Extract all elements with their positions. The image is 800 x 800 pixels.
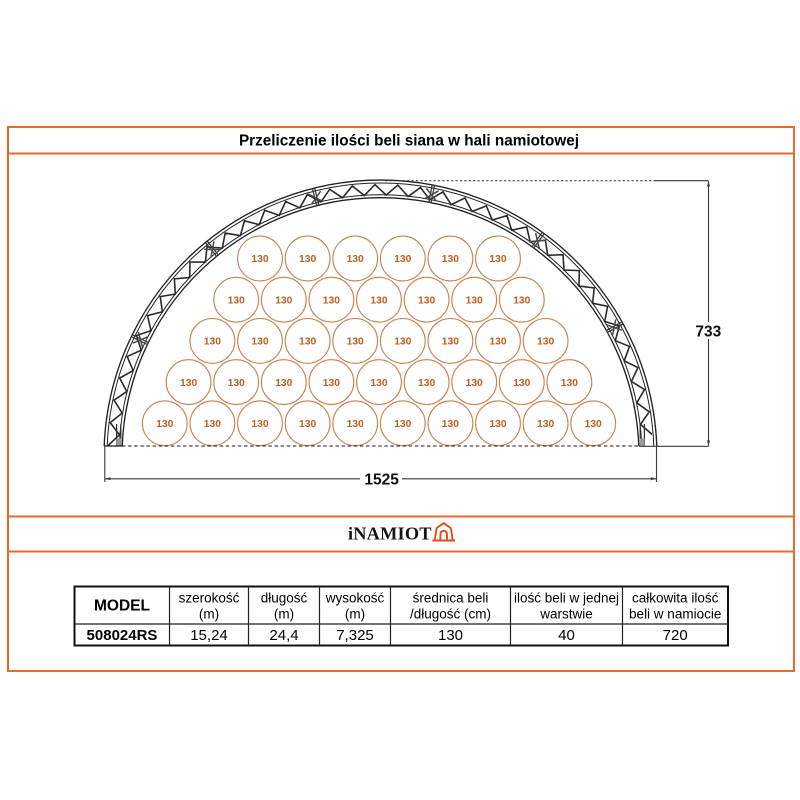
svg-text:130: 130 [347,419,364,430]
svg-text:130: 130 [156,419,173,430]
svg-text:720: 720 [663,627,688,644]
svg-text:130: 130 [394,419,411,430]
svg-text:wysokość: wysokość [325,591,385,606]
svg-text:130: 130 [489,254,506,265]
svg-text:ilość beli w jednej: ilość beli w jednej [514,591,619,606]
svg-text:warstwie: warstwie [539,607,593,622]
svg-text:130: 130 [561,378,578,389]
svg-text:iNAMIOT: iNAMIOT [348,524,432,544]
svg-text:130: 130 [394,337,411,348]
svg-text:MODEL: MODEL [94,598,150,615]
svg-text:130: 130 [513,295,530,306]
svg-text:130: 130 [418,378,435,389]
svg-text:130: 130 [204,337,221,348]
svg-text:130: 130 [537,337,554,348]
svg-text:130: 130 [370,295,387,306]
svg-text:(m): (m) [199,607,219,622]
svg-text:/długość (cm): /długość (cm) [410,607,491,622]
svg-text:130: 130 [442,254,459,265]
svg-text:130: 130 [466,378,483,389]
svg-text:130: 130 [537,419,554,430]
svg-text:130: 130 [299,254,316,265]
svg-text:130: 130 [442,337,459,348]
svg-text:130: 130 [489,337,506,348]
svg-text:130: 130 [251,337,268,348]
svg-text:130: 130 [323,378,340,389]
svg-text:130: 130 [251,254,268,265]
svg-text:130: 130 [204,419,221,430]
svg-text:130: 130 [585,419,602,430]
svg-text:długość: długość [261,591,308,606]
svg-text:Przeliczenie ilości beli siana: Przeliczenie ilości beli siana w hali na… [239,133,579,150]
svg-text:130: 130 [251,419,268,430]
svg-text:130: 130 [228,295,245,306]
svg-text:130: 130 [180,378,197,389]
svg-text:508024RS: 508024RS [87,627,158,644]
svg-text:beli w namiocie: beli w namiocie [629,607,721,622]
svg-text:130: 130 [489,419,506,430]
svg-text:130: 130 [299,419,316,430]
svg-text:130: 130 [347,254,364,265]
svg-text:7,325: 7,325 [336,627,374,644]
svg-text:130: 130 [513,378,530,389]
svg-text:średnica beli: średnica beli [413,591,489,606]
svg-text:130: 130 [347,337,364,348]
svg-text:(m): (m) [345,607,365,622]
svg-text:130: 130 [323,295,340,306]
svg-text:130: 130 [466,295,483,306]
svg-text:130: 130 [418,295,435,306]
svg-text:130: 130 [394,254,411,265]
svg-text:40: 40 [558,627,575,644]
svg-text:130: 130 [370,378,387,389]
svg-text:130: 130 [438,627,463,644]
svg-text:1525: 1525 [364,471,399,488]
svg-text:130: 130 [275,378,292,389]
svg-text:szerokość: szerokość [179,591,240,606]
svg-text:130: 130 [442,419,459,430]
svg-text:24,4: 24,4 [269,627,298,644]
svg-text:15,24: 15,24 [190,627,228,644]
svg-text:130: 130 [275,295,292,306]
svg-text:całkowita ilość: całkowita ilość [632,591,719,606]
svg-text:733: 733 [695,323,721,340]
svg-text:130: 130 [228,378,245,389]
svg-text:(m): (m) [274,607,294,622]
svg-text:130: 130 [299,337,316,348]
